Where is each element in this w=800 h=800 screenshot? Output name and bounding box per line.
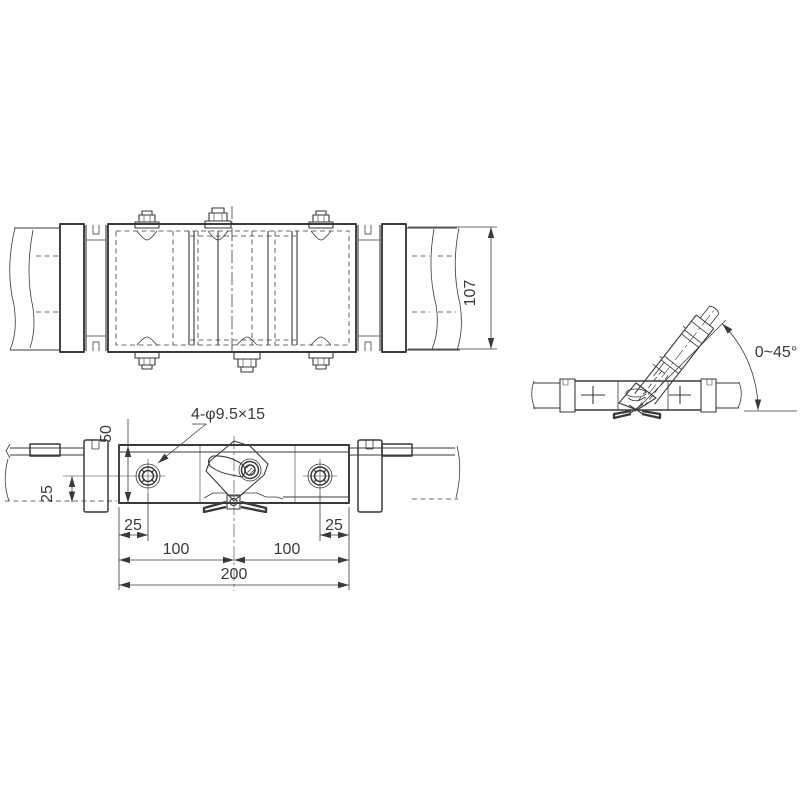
hole-callout-label: 4-φ9.5×15 bbox=[191, 406, 265, 423]
dim-200-label: 200 bbox=[221, 566, 248, 583]
front-view-left-pipe bbox=[5, 444, 117, 501]
dim-100-right-label: 100 bbox=[274, 541, 301, 558]
front-view-right-clamp bbox=[358, 440, 382, 512]
dim-25-vertical: 25 bbox=[39, 476, 131, 503]
dim-107: 107 bbox=[408, 227, 497, 349]
dim-angle-label: 0~45° bbox=[755, 344, 797, 361]
technical-drawing: 107 bbox=[0, 0, 800, 800]
dim-100-left-label: 100 bbox=[163, 541, 190, 558]
dim-25-left-label: 25 bbox=[124, 517, 142, 534]
top-view-right-clamp bbox=[358, 224, 406, 352]
dim-50: 50 bbox=[98, 419, 131, 503]
top-view-left-clamp bbox=[60, 224, 106, 352]
front-view: 4-φ9.5×15 50 25 25 bbox=[5, 406, 460, 591]
swivel-arm bbox=[635, 306, 720, 412]
dim-25-right-label: 25 bbox=[325, 517, 343, 534]
top-view-right-pipe bbox=[406, 228, 461, 350]
hole-left bbox=[131, 459, 165, 493]
top-view: 107 bbox=[10, 206, 497, 372]
dim-50-label: 50 bbox=[98, 425, 115, 443]
dim-25-vertical-label: 25 bbox=[39, 485, 56, 503]
top-view-left-pipe bbox=[10, 228, 60, 350]
front-view-right-pipe bbox=[349, 444, 460, 499]
side-view: 0~45° bbox=[532, 306, 797, 418]
hole-callout: 4-φ9.5×15 bbox=[156, 406, 265, 465]
hole-right bbox=[303, 459, 337, 493]
top-view-bolts-bottom bbox=[135, 337, 333, 372]
drawing-page: 107 bbox=[0, 0, 800, 800]
dim-107-label: 107 bbox=[462, 280, 479, 307]
